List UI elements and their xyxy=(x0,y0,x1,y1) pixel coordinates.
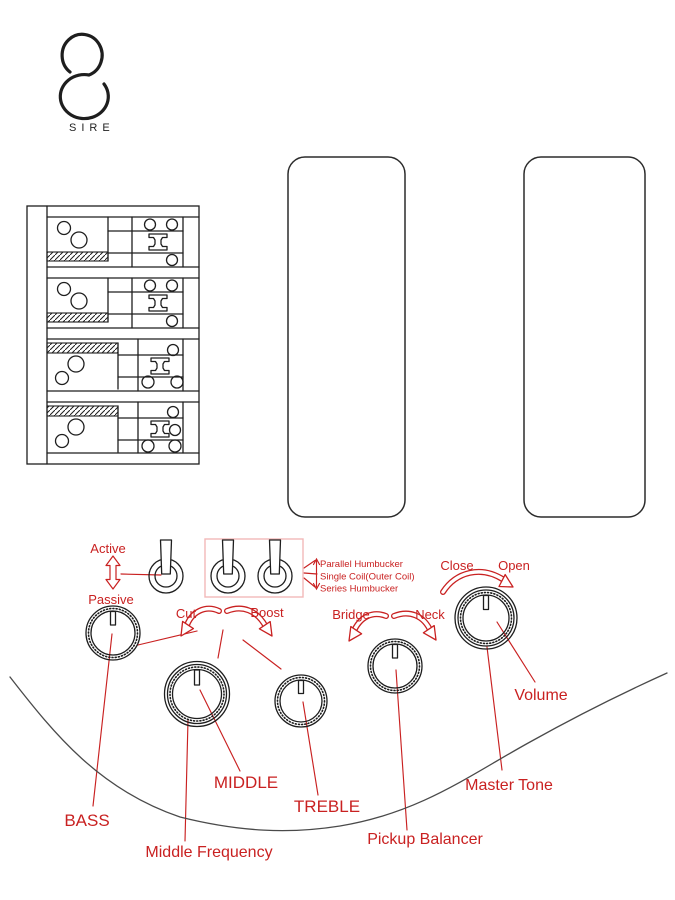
bass-controls-diagram: SIRE xyxy=(0,0,675,900)
coil-mode-switch-1 xyxy=(211,540,245,593)
active-passive-switch xyxy=(149,540,183,593)
label-cut: Cut xyxy=(176,606,197,621)
sire-logo: SIRE xyxy=(60,34,114,134)
treble-knob xyxy=(275,675,327,727)
callout-line-middle-frequency xyxy=(185,720,188,841)
callout-line-mode-2 xyxy=(304,573,317,574)
diagram-page: SIRE xyxy=(0,0,675,900)
label-treble: TREBLE xyxy=(294,797,360,816)
label-middle-frequency: Middle Frequency xyxy=(145,844,272,861)
label-master-tone: Master Tone xyxy=(465,777,553,794)
label-parallel-humbucker: Parallel Humbucker xyxy=(320,559,403,570)
bass-knob xyxy=(86,606,140,660)
label-active: Active xyxy=(90,541,125,556)
bridge-pickup xyxy=(524,157,645,517)
volume-knob xyxy=(455,587,517,649)
bridge-technical-drawing xyxy=(27,206,199,464)
bridge-saddle-3 xyxy=(47,339,183,391)
middle-knob xyxy=(165,662,230,727)
label-bridge: Bridge xyxy=(332,607,370,622)
label-neck: Neck xyxy=(415,607,445,622)
label-middle: MIDDLE xyxy=(214,773,278,792)
callout-line-volume xyxy=(497,622,535,682)
bridge-saddle-1 xyxy=(47,217,183,267)
sire-logo-text: SIRE xyxy=(69,122,115,134)
callout-line-pickup-balancer xyxy=(396,670,407,830)
label-single-coil: Single Coil(Outer Coil) xyxy=(320,572,415,583)
bridge-saddle-2 xyxy=(47,278,183,328)
callout-line-eq-middle xyxy=(218,630,223,658)
callout-line-mode-3 xyxy=(304,578,315,587)
callout-line-eq-treble xyxy=(243,640,281,669)
label-open: Open xyxy=(498,558,530,573)
label-passive: Passive xyxy=(88,592,134,607)
label-close: Close xyxy=(440,558,473,573)
label-series-humbucker: Series Humbucker xyxy=(320,584,398,595)
sire-logo-s-mark xyxy=(60,34,108,118)
callout-line-eq-bass xyxy=(138,631,197,645)
bridge-saddle-4 xyxy=(47,402,183,453)
coil-mode-switch-2 xyxy=(258,540,292,593)
pickup-balancer-knob xyxy=(368,639,422,693)
callout-line-master-tone xyxy=(487,647,502,770)
label-bass: BASS xyxy=(64,811,109,830)
label-pickup-balancer: Pickup Balancer xyxy=(367,831,483,848)
active-passive-arrow-icon xyxy=(106,556,120,589)
close-open-arrow-icon xyxy=(443,572,513,592)
neck-pickup xyxy=(288,157,405,517)
label-volume: Volume xyxy=(514,687,567,704)
label-boost: Boost xyxy=(250,605,284,620)
